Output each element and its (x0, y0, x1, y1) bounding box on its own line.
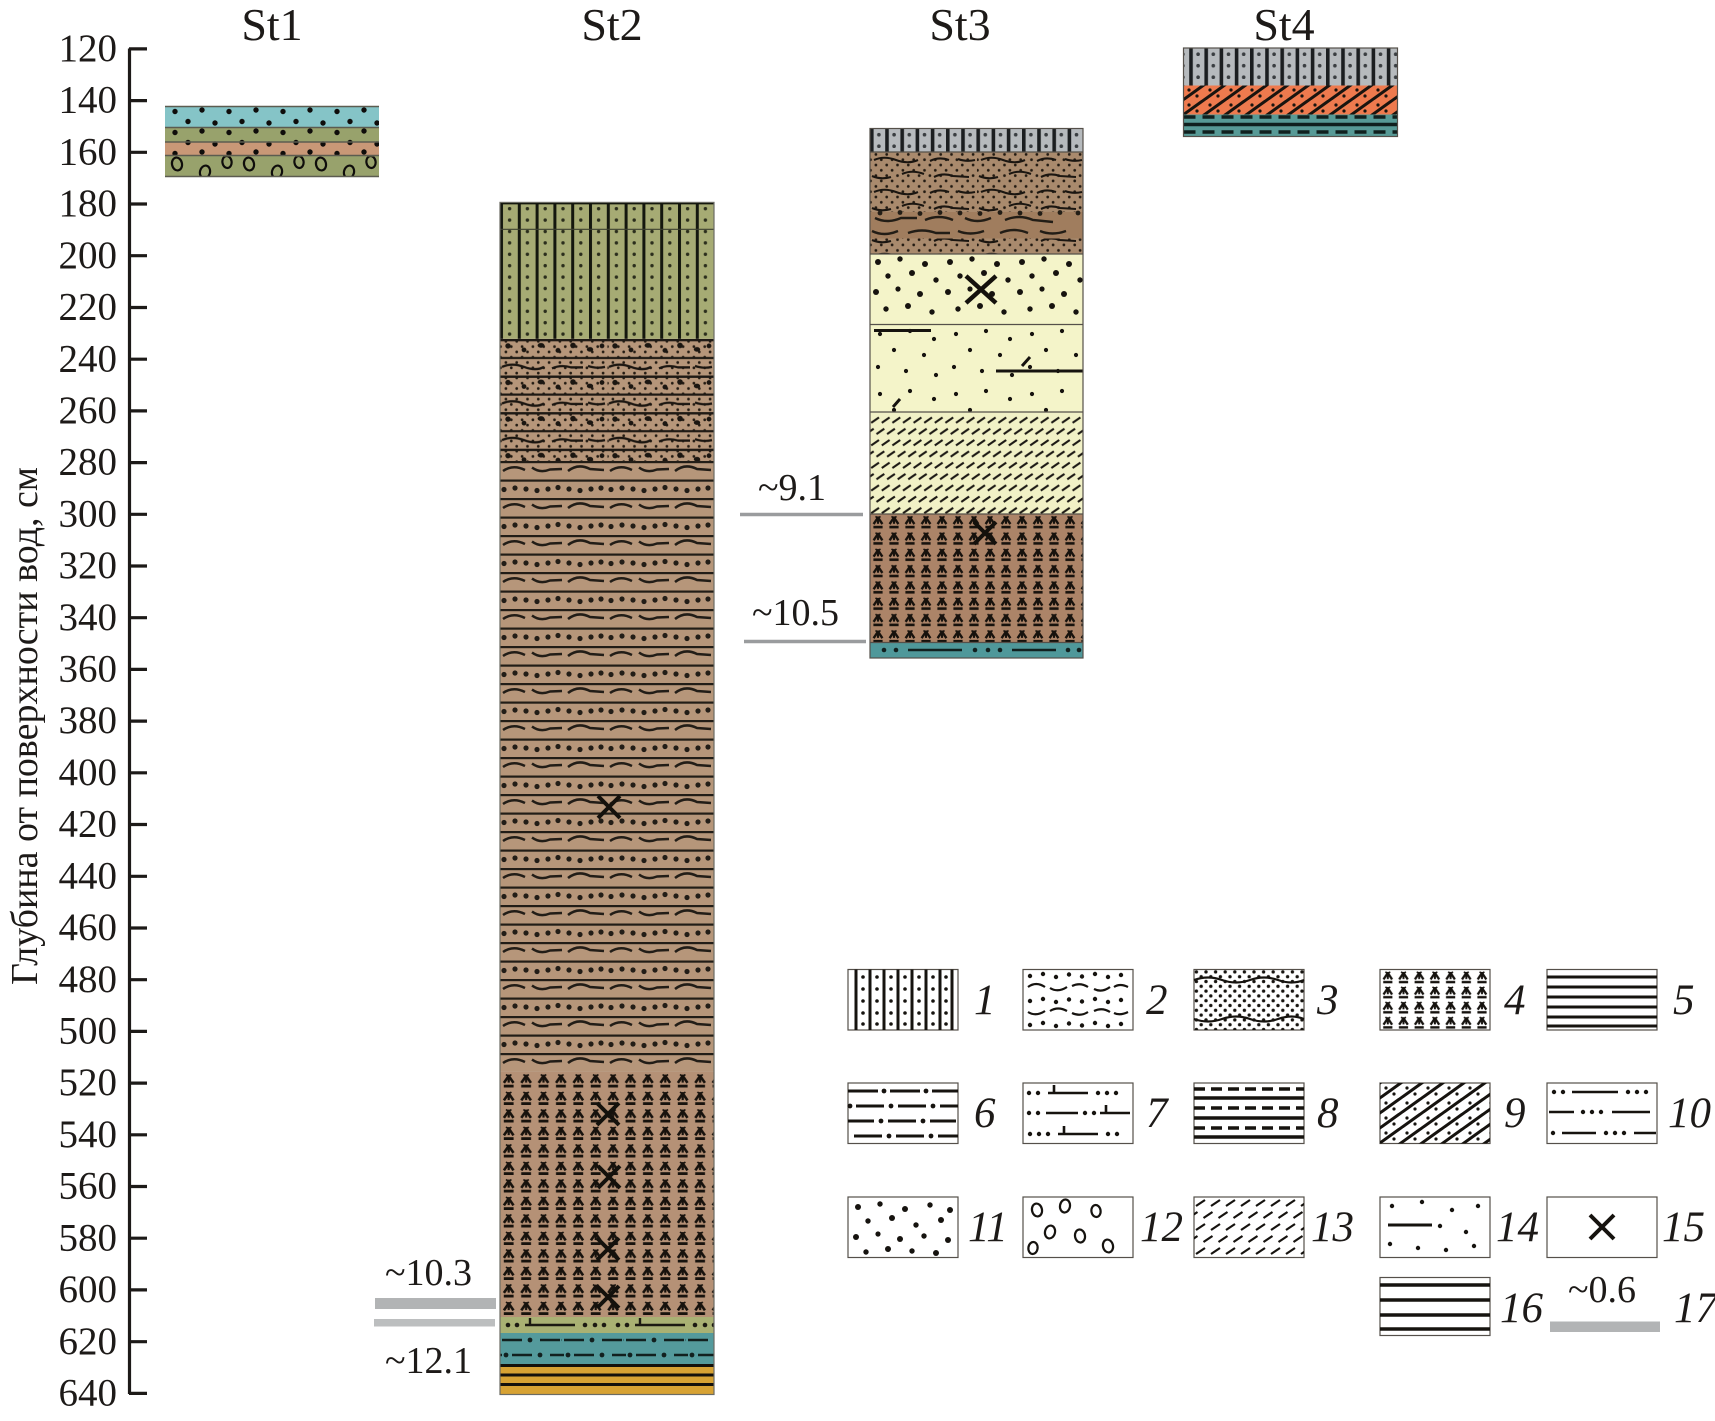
svg-text:600: 600 (59, 1268, 118, 1311)
svg-text:620: 620 (59, 1320, 118, 1363)
svg-text:160: 160 (59, 130, 118, 173)
svg-text:320: 320 (59, 544, 118, 587)
svg-text:220: 220 (59, 286, 118, 329)
svg-text:300: 300 (59, 492, 118, 535)
svg-text:St2: St2 (581, 0, 642, 50)
svg-text:8: 8 (1317, 1090, 1339, 1137)
svg-text:14: 14 (1496, 1204, 1539, 1251)
svg-text:4: 4 (1504, 977, 1526, 1024)
svg-text:140: 140 (59, 79, 118, 122)
svg-text:520: 520 (59, 1061, 118, 1104)
svg-text:~10.5: ~10.5 (752, 592, 839, 634)
svg-text:7: 7 (1146, 1090, 1169, 1137)
svg-text:3: 3 (1316, 977, 1339, 1024)
svg-text:~10.3: ~10.3 (385, 1252, 472, 1294)
svg-text:280: 280 (59, 441, 118, 484)
svg-text:15: 15 (1662, 1204, 1705, 1251)
svg-text:200: 200 (59, 234, 118, 277)
svg-text:~0.6: ~0.6 (1568, 1269, 1636, 1311)
svg-text:420: 420 (59, 803, 118, 846)
svg-text:St3: St3 (929, 0, 990, 50)
svg-text:340: 340 (59, 596, 118, 639)
svg-text:360: 360 (59, 648, 118, 691)
svg-text:1: 1 (974, 977, 996, 1024)
svg-text:12: 12 (1140, 1204, 1183, 1251)
svg-text:560: 560 (59, 1165, 118, 1208)
svg-text:16: 16 (1500, 1285, 1544, 1332)
svg-text:500: 500 (59, 1010, 118, 1053)
svg-text:180: 180 (59, 182, 118, 225)
svg-text:260: 260 (59, 389, 118, 432)
svg-text:440: 440 (59, 854, 118, 897)
svg-text:480: 480 (59, 958, 118, 1001)
svg-text:6: 6 (974, 1090, 996, 1137)
svg-text:~12.1: ~12.1 (385, 1340, 472, 1382)
svg-text:5: 5 (1673, 977, 1695, 1024)
svg-text:St1: St1 (241, 0, 302, 50)
svg-text:10: 10 (1668, 1090, 1711, 1137)
svg-text:400: 400 (59, 751, 118, 794)
svg-text:2: 2 (1146, 977, 1168, 1024)
svg-text:460: 460 (59, 906, 118, 949)
svg-text:640: 640 (59, 1372, 118, 1415)
svg-text:Глубина от поверхности вод, см: Глубина от поверхности вод, см (4, 467, 46, 985)
svg-text:120: 120 (59, 27, 118, 70)
svg-text:~9.1: ~9.1 (758, 467, 826, 509)
svg-text:240: 240 (59, 337, 118, 380)
svg-text:9: 9 (1504, 1090, 1526, 1137)
svg-text:11: 11 (968, 1204, 1008, 1251)
svg-text:St4: St4 (1253, 0, 1314, 50)
svg-text:380: 380 (59, 699, 118, 742)
svg-text:540: 540 (59, 1113, 118, 1156)
svg-text:580: 580 (59, 1216, 118, 1259)
svg-text:13: 13 (1311, 1204, 1354, 1251)
svg-text:17: 17 (1674, 1285, 1715, 1332)
